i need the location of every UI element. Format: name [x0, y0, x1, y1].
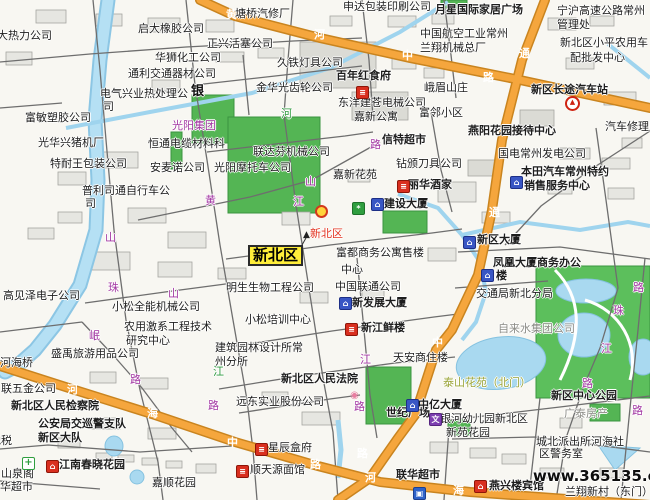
map-label: 广泰房产	[564, 408, 608, 420]
map-label: 通利交通器材公司	[128, 68, 216, 80]
map-label: 联达芬机械公司	[253, 146, 330, 158]
map-label: 新北区人民检察院	[11, 400, 99, 412]
map-label: 月星国际家居广场	[435, 4, 523, 16]
map-label: 路	[357, 448, 368, 460]
building-icon: ⌂	[339, 297, 352, 310]
map-label: 黄	[226, 9, 237, 21]
map-label: 河	[281, 108, 292, 120]
district-poi-label: 新北区	[310, 228, 343, 240]
map-label: 银	[191, 86, 204, 98]
map-label: 江	[293, 196, 304, 208]
map-label: 新区中心公园	[551, 390, 617, 402]
map-label: 高见泽电子公司	[3, 290, 80, 302]
map-label: 安麦诺公司	[150, 162, 205, 174]
map-label: 江南春晓花园	[59, 459, 125, 471]
region-highlight: 新北区	[248, 245, 303, 266]
map-label: 山	[168, 288, 179, 300]
map-label: 新区大队	[38, 432, 82, 444]
monument-icon: ▲	[301, 230, 312, 241]
map-label: 华狮化工公司	[155, 52, 221, 64]
map-label: 嘉顺花园	[152, 477, 196, 489]
map-label: 山	[105, 232, 116, 244]
map-label: 燕阳花园接待中心	[468, 125, 556, 137]
map-label: 路	[310, 459, 321, 471]
map-label: 管理处	[557, 19, 590, 31]
map-label: 山	[305, 176, 316, 188]
building-icon: ⌂	[510, 176, 523, 189]
map-label: 珠	[108, 282, 119, 294]
map-label: 华超市	[0, 481, 33, 493]
map-label: 河	[67, 384, 78, 396]
hotel-icon: ⌂	[474, 480, 487, 493]
map-label: 宁沪高速公路常州	[557, 5, 645, 17]
map-label: 岷	[89, 330, 100, 342]
map-label: 河	[365, 472, 376, 484]
map-label: 百年红食府	[336, 70, 391, 82]
map-label: 路	[632, 405, 643, 417]
map-label: 河	[314, 29, 325, 41]
map-label: 建筑园林设计所常	[215, 342, 303, 354]
map-label: 中	[227, 437, 238, 449]
map-label: 启大橡胶公司	[138, 23, 204, 35]
map-label: 嘉新花苑	[333, 169, 377, 181]
map-label: 恒通电缆材料科	[148, 138, 225, 150]
map-label: 路	[354, 401, 365, 413]
map-label: 泰山花苑（北门）	[443, 377, 531, 389]
map-label: 江	[213, 366, 224, 378]
map-label: 电气兴业热处理公	[100, 88, 188, 100]
map-label: 路	[130, 374, 141, 386]
map-label: 江	[601, 343, 612, 355]
map-label: 普利司通自行车公	[82, 185, 170, 197]
map-label: 特耐王包装公司	[50, 158, 127, 170]
map-label: 自来水集团公司	[498, 323, 575, 335]
map-label: 星辰盒府	[268, 442, 312, 454]
map-label: 远东实业股份公司	[236, 396, 324, 408]
map-label: 司	[103, 101, 114, 113]
flower-icon: ◉	[349, 390, 360, 401]
map-label: 明生生物工程公司	[226, 282, 314, 294]
map-label: 路	[582, 378, 593, 390]
map-label: 新发展大厦	[352, 297, 407, 309]
restaurant-icon: ≡	[236, 465, 249, 478]
map-label: 银河幼儿园新北区	[440, 413, 528, 425]
restaurant-icon: ≡	[356, 86, 369, 99]
restaurant-icon: ≡	[397, 180, 410, 193]
map-label: 路	[370, 139, 381, 151]
map-label: 顺天源面馆	[250, 464, 305, 476]
map-label: 正兴活塞公司	[207, 38, 273, 50]
map-label: 配批发中心	[570, 52, 625, 64]
map-label: 公安局交巡警支队	[38, 418, 126, 430]
map-label: 楼	[496, 270, 507, 282]
map-label: 海	[147, 408, 158, 420]
map-label: 新区长途汽车站	[531, 84, 608, 96]
building-icon: ⌂	[406, 399, 419, 412]
map-label: 路	[633, 282, 644, 294]
map-label: 本田汽车常州特约	[521, 166, 609, 178]
map-label: 峨眉山庄	[424, 82, 468, 94]
map-label: 海	[453, 485, 464, 497]
map-label: 路	[208, 400, 219, 412]
building-icon: ⌂	[481, 269, 494, 282]
map-label: 河海桥	[0, 357, 33, 369]
map-label: 兰翔新村（东门）	[565, 486, 650, 498]
map-label: 天安商住楼	[393, 352, 448, 364]
map-label: 联五金公司	[1, 383, 56, 395]
route-badge-icon	[315, 205, 328, 218]
building-icon: ⌂	[463, 236, 476, 249]
map-label: 通	[489, 207, 500, 219]
map-label: 农用激系工程技术	[124, 321, 212, 333]
map-label: 中心	[341, 264, 363, 276]
map-label: 路	[483, 72, 494, 84]
bus-station-icon: ▲	[565, 96, 580, 111]
map-label: 交通局新北分局	[476, 288, 553, 300]
map-label: 区警务室	[539, 448, 583, 460]
map-label: 久铁灯具公司	[277, 57, 343, 69]
restaurant-icon: ≡	[255, 443, 268, 456]
map-label: 珠	[613, 305, 624, 317]
park-badge-icon: *	[352, 202, 365, 215]
map-label: 黄	[205, 195, 216, 207]
map-label: 新苑花园	[446, 427, 490, 439]
map-label: 研究中心	[126, 335, 170, 347]
map-label: 钻颁刀具公司	[396, 158, 462, 170]
map-label: 通	[519, 48, 530, 60]
map-label: 塘桥汽修厂	[235, 8, 290, 20]
building-icon: ⌂	[371, 198, 384, 211]
map-label: 富邻小区	[419, 107, 463, 119]
pharmacy-icon: +	[22, 457, 35, 470]
map-label: 国电常州发电公司	[498, 148, 586, 160]
map-label: 新江鲜楼	[361, 322, 405, 334]
watermark: www.365135.com	[533, 470, 650, 482]
map-label: 联华超市	[396, 469, 440, 481]
map-label: 汽车修理厂	[605, 121, 650, 133]
map-label: 江	[360, 354, 371, 366]
restaurant-icon: ≡	[345, 323, 358, 336]
map-label: 金华光齿轮公司	[256, 82, 333, 94]
map-label: 大热力公司	[0, 30, 52, 42]
map-label: 中国联通公司	[335, 281, 401, 293]
map-label: 地税	[0, 435, 12, 447]
school-icon: 文	[429, 413, 442, 426]
hotel-icon: ⌂	[46, 460, 59, 473]
map-label: 丽华酒家	[408, 179, 452, 191]
map-label: 新北区小平农用车	[560, 37, 648, 49]
map-label: 建设大厦	[384, 198, 428, 210]
map-label: 申达包装印刷公司	[343, 1, 431, 13]
map-label: 新北区人民法院	[281, 373, 358, 385]
map-label: 富敏塑胶公司	[25, 112, 91, 124]
map-label: 凤凰大厦商务办公	[493, 257, 581, 269]
map-label: 中国航空工业常州	[420, 28, 508, 40]
map-label: 中亿大厦	[418, 399, 462, 411]
map-label: 光阳集团	[172, 120, 216, 132]
map-label: 富都商务公寓售楼	[336, 247, 424, 259]
map-label: 司	[85, 198, 96, 210]
map-label: 信特超市	[382, 134, 426, 146]
shop-icon: ▣	[413, 487, 426, 500]
map-label: 小松培训中心	[245, 314, 311, 326]
map-label: 盛禹旅游用品公司	[51, 348, 139, 360]
map-label: 光华兴猪机厂	[38, 137, 104, 149]
map-label: 中	[402, 50, 413, 62]
map-canvas[interactable]: 大热力公司启大橡胶公司申达包装印刷公司塘桥汽修厂正兴活塞公司华狮化工公司通利交通…	[0, 0, 650, 500]
map-label: 小松全能机械公司	[112, 301, 200, 313]
map-label: 嘉新公寓	[354, 111, 398, 123]
map-label: 东洋建苍电械公司	[338, 97, 426, 109]
map-label: 新区大厦	[477, 234, 521, 246]
map-label: 兰翔机械总厂	[420, 42, 486, 54]
map-label: 光阳摩托车公司	[214, 162, 291, 174]
map-label: 销售服务中心	[524, 180, 590, 192]
map-label: 中	[432, 337, 443, 349]
